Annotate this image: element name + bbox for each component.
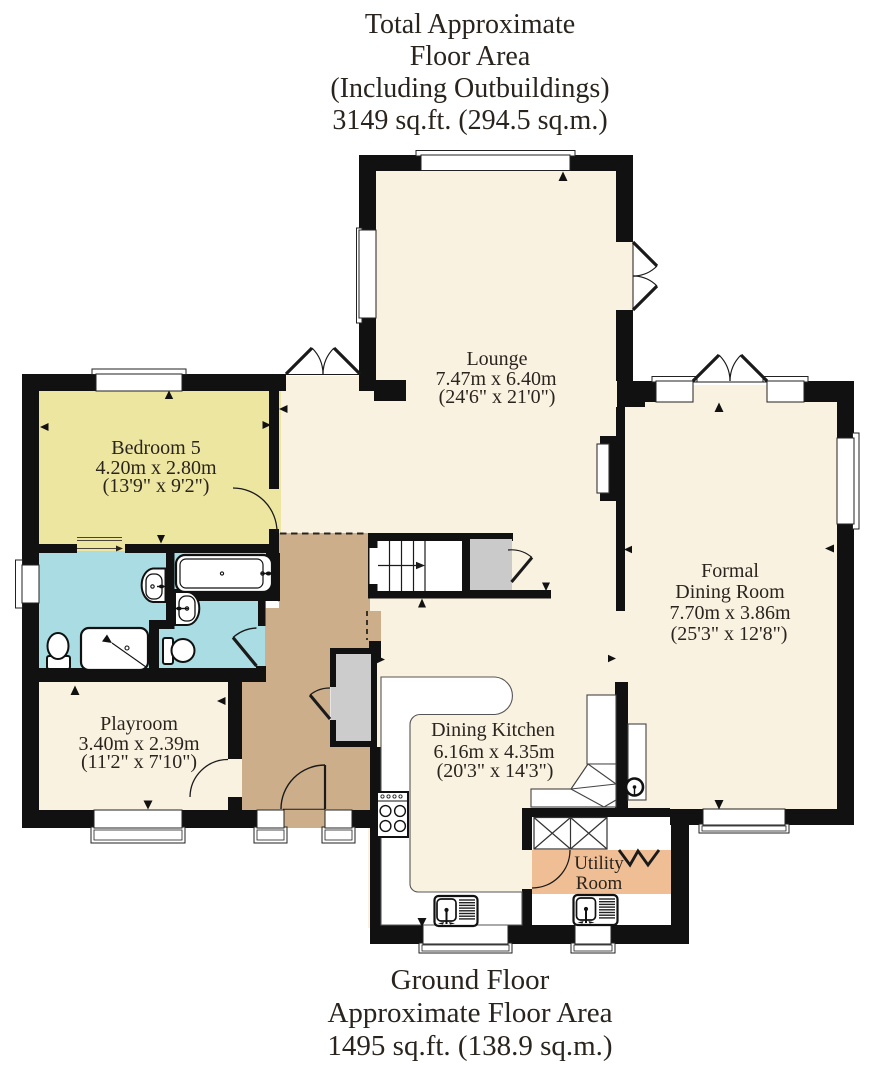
svg-text:Playroom: Playroom [100,713,178,735]
svg-text:Ground Floor: Ground Floor [391,964,550,996]
svg-text:1495 sq.ft. (138.9 sq.m.): 1495 sq.ft. (138.9 sq.m.) [327,1030,612,1062]
svg-text:7.70m x 3.86m: 7.70m x 3.86m [669,602,791,624]
svg-text:(Including Outbuildings): (Including Outbuildings) [330,73,609,104]
svg-text:Formal: Formal [701,560,759,582]
svg-text:Dining Kitchen: Dining Kitchen [431,719,555,741]
svg-text:Approximate Floor Area: Approximate Floor Area [327,997,612,1029]
svg-text:(13'9" x 9'2"): (13'9" x 9'2") [103,475,210,497]
svg-text:Bedroom 5: Bedroom 5 [111,437,200,459]
svg-text:Room: Room [576,873,623,894]
svg-text:(24'6" x 21'0"): (24'6" x 21'0") [439,386,556,408]
svg-text:Floor Area: Floor Area [410,41,531,72]
svg-text:3149 sq.ft. (294.5 sq.m.): 3149 sq.ft. (294.5 sq.m.) [332,105,607,136]
svg-text:(25'3" x 12'8"): (25'3" x 12'8") [671,623,788,645]
svg-text:Utility: Utility [574,853,624,874]
svg-text:(11'2" x 7'10"): (11'2" x 7'10") [81,751,197,773]
svg-text:Lounge: Lounge [466,348,527,370]
svg-text:Total Approximate: Total Approximate [365,9,575,40]
svg-text:Dining Room: Dining Room [675,581,785,603]
svg-text:(20'3" x 14'3"): (20'3" x 14'3") [437,760,554,782]
